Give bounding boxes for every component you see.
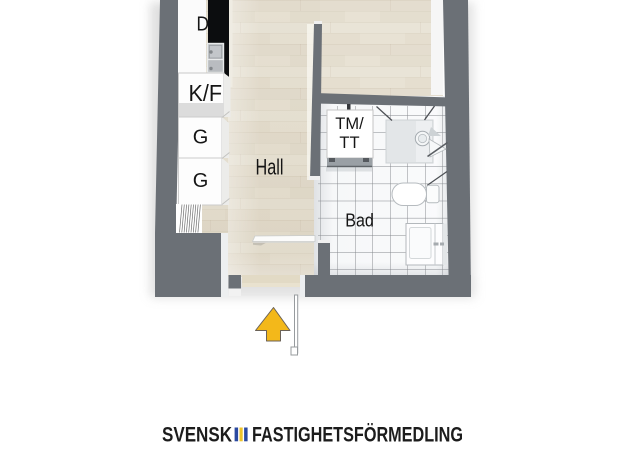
svg-text:TT: TT	[339, 134, 359, 152]
svg-text:G: G	[193, 170, 209, 192]
svg-text:Bad: Bad	[345, 211, 374, 231]
svg-text:FASTIGHETSFÖRMEDLING: FASTIGHETSFÖRMEDLING	[252, 424, 463, 447]
svg-text:Hall: Hall	[256, 155, 284, 180]
svg-text:SVENSK: SVENSK	[162, 424, 232, 447]
svg-text:TM/: TM/	[335, 115, 364, 133]
svg-text:K/F: K/F	[189, 80, 223, 106]
svg-text:D: D	[197, 14, 210, 36]
svg-text:G: G	[193, 127, 209, 149]
